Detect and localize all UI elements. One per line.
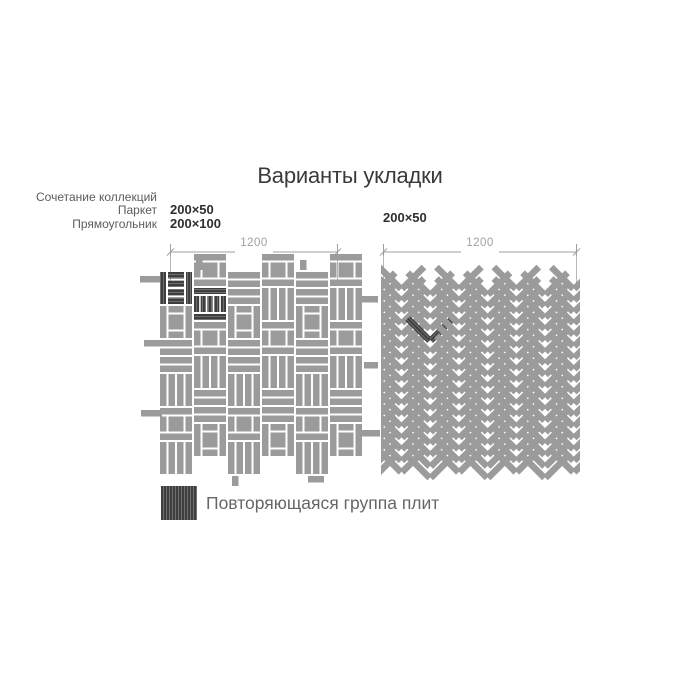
tile xyxy=(245,374,252,406)
tile xyxy=(262,356,269,388)
patterns-canvas xyxy=(0,0,700,700)
tile xyxy=(305,306,320,313)
tile xyxy=(196,259,203,270)
tile xyxy=(322,417,329,432)
highlight-tile xyxy=(186,272,192,304)
tile xyxy=(305,374,312,406)
tile xyxy=(271,424,286,431)
tile xyxy=(296,434,328,441)
highlight-tile xyxy=(194,314,226,320)
parquet-pattern-diagram xyxy=(140,254,380,486)
tile xyxy=(203,424,218,431)
tile xyxy=(160,366,192,373)
tile xyxy=(271,356,278,388)
collection-line-rectangle: Прямоугольник xyxy=(18,218,157,231)
tile xyxy=(296,281,328,288)
tile xyxy=(296,272,328,279)
tile xyxy=(140,276,160,283)
tile xyxy=(194,424,201,456)
tile xyxy=(237,374,244,406)
tile xyxy=(186,306,193,338)
tile xyxy=(237,417,252,432)
tile xyxy=(288,331,295,346)
tile xyxy=(322,442,329,474)
tile xyxy=(169,417,184,432)
dimension-line xyxy=(167,244,341,286)
tile xyxy=(262,331,269,346)
tile xyxy=(262,399,294,406)
tile xyxy=(339,433,354,448)
tile xyxy=(330,322,362,329)
tile xyxy=(228,374,235,406)
tile xyxy=(330,263,337,278)
tile xyxy=(228,298,260,305)
tile xyxy=(300,260,307,270)
highlight-tile xyxy=(168,281,184,288)
tile xyxy=(262,288,269,320)
tile xyxy=(169,332,184,339)
right-dimension-label: 1200 xyxy=(383,237,577,249)
highlight-tile xyxy=(160,272,166,304)
tile xyxy=(279,288,286,320)
tile xyxy=(237,315,252,330)
tile xyxy=(194,399,226,406)
highlight-tile xyxy=(214,296,219,312)
highlight-tile xyxy=(207,296,212,312)
tile xyxy=(308,476,324,483)
highlight-tile xyxy=(168,298,184,305)
highlight-tile xyxy=(194,288,226,294)
tile xyxy=(296,442,303,474)
tile xyxy=(339,424,354,431)
right-tile-sizes: 200×50 xyxy=(383,211,427,225)
collection-line-combination: Сочетание коллекций xyxy=(18,191,157,204)
tile xyxy=(296,417,303,432)
poster-canvas: Варианты укладки Сочетание коллекций Пар… xyxy=(0,0,700,700)
tile xyxy=(362,296,378,303)
right-tile-size-200x50: 200×50 xyxy=(383,211,427,225)
tile xyxy=(347,356,354,388)
tile xyxy=(330,407,362,414)
tile xyxy=(305,417,320,432)
tile xyxy=(322,306,329,338)
tile xyxy=(203,433,218,448)
highlight-tile xyxy=(194,296,199,312)
tile xyxy=(330,254,362,261)
tile xyxy=(144,340,160,347)
tile xyxy=(305,332,320,339)
tile xyxy=(330,416,362,423)
tile xyxy=(296,408,328,415)
tile xyxy=(220,331,227,346)
tile xyxy=(296,357,328,364)
tile xyxy=(237,332,252,339)
page-title: Варианты укладки xyxy=(0,163,700,189)
tile xyxy=(339,331,354,346)
tile xyxy=(228,408,260,415)
tile xyxy=(296,298,328,305)
tile xyxy=(186,417,193,432)
tile xyxy=(364,362,378,369)
tile xyxy=(296,349,328,356)
tile xyxy=(305,442,312,474)
tile xyxy=(254,442,261,474)
tile xyxy=(348,454,375,481)
tile xyxy=(237,306,252,313)
tile xyxy=(330,424,337,456)
tile xyxy=(262,416,294,423)
tile xyxy=(160,442,167,474)
tile xyxy=(305,315,320,330)
tile xyxy=(288,356,295,388)
tile xyxy=(339,288,346,320)
tile xyxy=(160,408,192,415)
tile xyxy=(194,416,226,423)
tile xyxy=(254,374,261,406)
tile xyxy=(271,263,286,278)
tile xyxy=(262,263,269,278)
tile xyxy=(339,263,354,278)
tile xyxy=(330,356,337,388)
tile xyxy=(194,322,226,329)
tile xyxy=(262,348,294,355)
tile xyxy=(254,417,261,432)
tile xyxy=(228,340,260,347)
tile xyxy=(228,289,260,296)
tile xyxy=(228,366,260,373)
left-tile-size-200x100: 200×100 xyxy=(170,217,221,231)
tile xyxy=(330,331,337,346)
herringbone-pattern-diagram xyxy=(348,265,599,481)
tile xyxy=(313,442,320,474)
tile xyxy=(160,349,192,356)
legend-label: Повторяющаяся группа плит xyxy=(206,493,439,514)
tile xyxy=(262,280,294,287)
tile xyxy=(194,356,201,388)
legend-swatch xyxy=(161,486,197,520)
tile xyxy=(339,356,346,388)
tile xyxy=(186,442,193,474)
tile xyxy=(347,288,354,320)
tile xyxy=(169,315,184,330)
tile xyxy=(288,288,295,320)
tile xyxy=(356,356,363,388)
tile xyxy=(160,357,192,364)
tile xyxy=(296,340,328,347)
tile xyxy=(362,430,380,437)
tile xyxy=(313,374,320,406)
tile xyxy=(228,442,235,474)
tile xyxy=(160,417,167,432)
tile xyxy=(288,263,295,278)
tile xyxy=(203,450,218,457)
tile xyxy=(160,434,192,441)
tile xyxy=(279,356,286,388)
left-tile-size-200x50: 200×50 xyxy=(170,203,221,217)
tile xyxy=(262,424,269,456)
tile xyxy=(160,306,167,338)
highlight-tile xyxy=(201,296,206,312)
tile xyxy=(271,288,278,320)
tile xyxy=(228,434,260,441)
tile xyxy=(194,390,226,397)
tile xyxy=(169,306,184,313)
tile xyxy=(339,450,354,457)
tile xyxy=(296,366,328,373)
tile xyxy=(220,356,227,388)
tile xyxy=(296,374,303,406)
tile xyxy=(203,263,218,278)
tile xyxy=(220,263,227,278)
left-dimension-label: 1200 xyxy=(170,237,338,249)
tile xyxy=(296,306,303,338)
tile xyxy=(271,450,286,457)
tile xyxy=(237,442,244,474)
tile xyxy=(356,331,363,346)
tile xyxy=(232,476,239,486)
tile xyxy=(288,424,295,456)
tile xyxy=(271,331,286,346)
tile xyxy=(262,407,294,414)
tile xyxy=(262,254,294,261)
tile xyxy=(177,442,184,474)
collection-line-parquet: Паркет xyxy=(18,204,157,217)
tile xyxy=(245,442,252,474)
tile xyxy=(186,374,193,406)
tile xyxy=(330,280,362,287)
highlight-tile xyxy=(168,272,184,279)
collection-labels: Сочетание коллекций Паркет Прямоугольник xyxy=(18,191,157,231)
tile xyxy=(194,331,201,346)
tile xyxy=(356,424,363,456)
tile xyxy=(177,374,184,406)
tile xyxy=(194,407,226,414)
tile xyxy=(211,356,218,388)
tile xyxy=(141,410,162,417)
tile xyxy=(203,331,218,346)
tile xyxy=(330,399,362,406)
tile xyxy=(572,265,599,292)
highlight-tile xyxy=(168,289,184,296)
tile xyxy=(220,424,227,456)
tile xyxy=(262,322,294,329)
tile xyxy=(169,374,176,406)
tile xyxy=(262,390,294,397)
tile xyxy=(228,272,260,279)
tile xyxy=(228,349,260,356)
tile xyxy=(330,288,337,320)
tile xyxy=(228,281,260,288)
tile xyxy=(169,442,176,474)
tile xyxy=(194,280,226,287)
tile xyxy=(356,263,363,278)
tile xyxy=(228,357,260,364)
tile xyxy=(228,417,235,432)
left-tile-sizes: 200×50 200×100 xyxy=(170,203,221,231)
tile xyxy=(203,356,210,388)
tile xyxy=(322,374,329,406)
highlight-tile xyxy=(221,296,226,312)
tile xyxy=(330,348,362,355)
tile xyxy=(271,433,286,448)
tile xyxy=(296,289,328,296)
tile xyxy=(254,306,261,338)
tile xyxy=(160,374,167,406)
tile xyxy=(194,348,226,355)
tile xyxy=(228,306,235,338)
tile xyxy=(356,288,363,320)
tile xyxy=(160,340,192,347)
tile xyxy=(330,390,362,397)
